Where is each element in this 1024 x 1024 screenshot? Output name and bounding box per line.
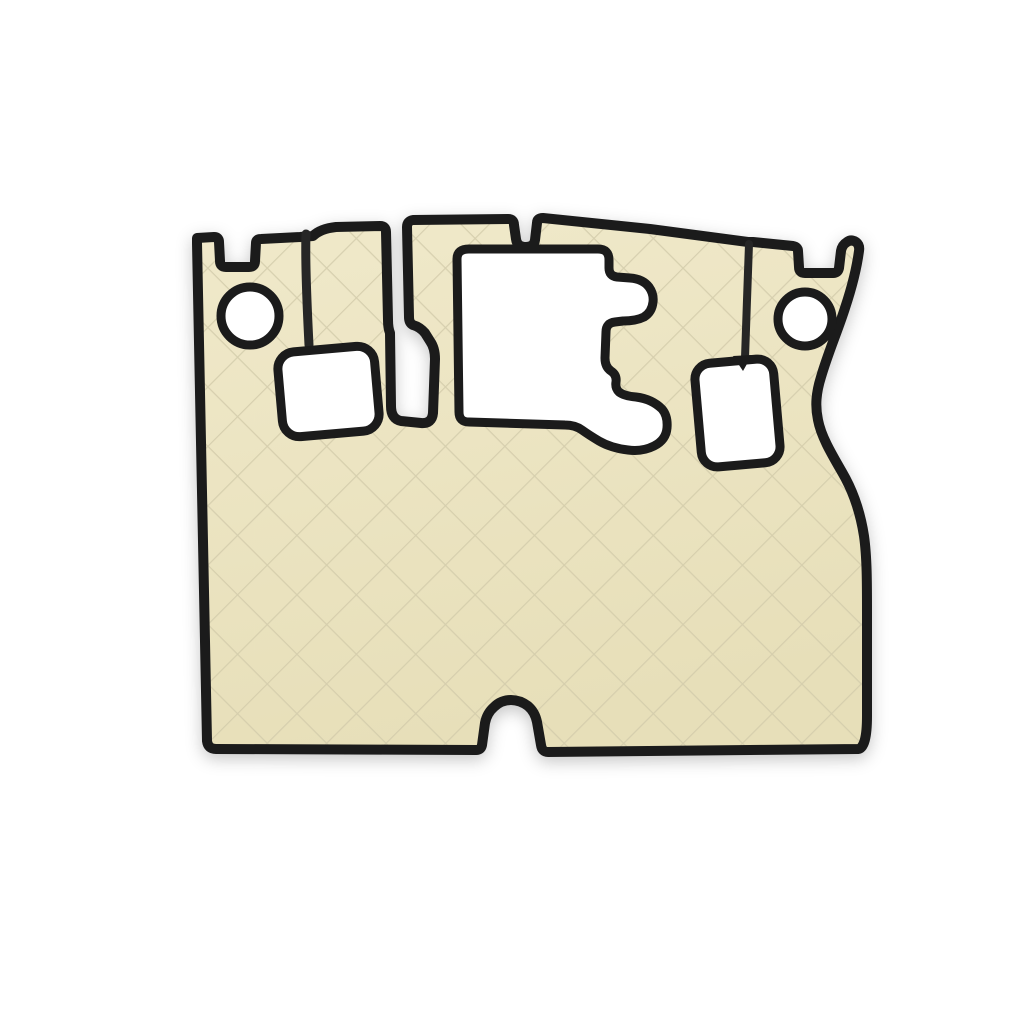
mounting-hole-left	[221, 287, 279, 345]
product-photo-page	[0, 0, 1024, 1024]
panel-seam-right	[745, 244, 749, 358]
mounting-hole-right	[778, 292, 832, 346]
floor-mat	[197, 218, 867, 752]
panel-seam-left	[306, 234, 309, 345]
gear-lever-cutout	[694, 358, 782, 468]
seat-base-cutout-left	[276, 345, 380, 438]
floor-mat-product-photo	[0, 0, 1024, 1024]
